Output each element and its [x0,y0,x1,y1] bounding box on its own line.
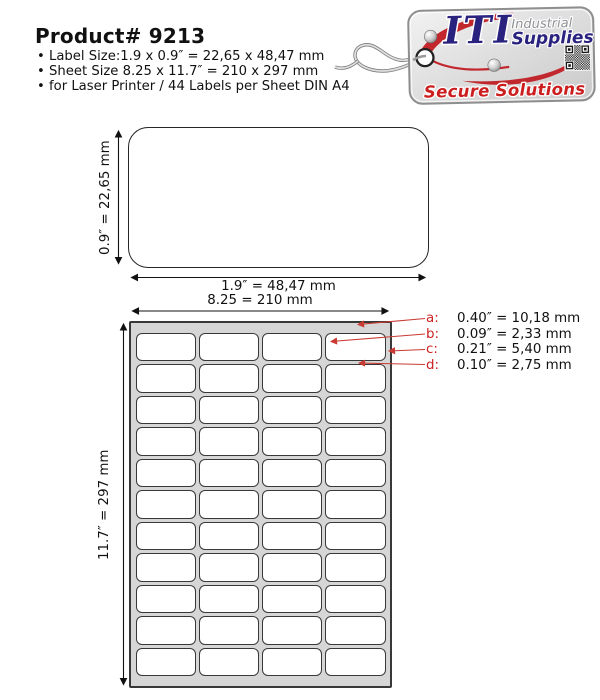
spec-bullet-sheet-size: • Sheet Size 8.25 x 11.7″ = 210 x 297 mm [37,65,350,80]
sheet-label-cell [262,364,322,392]
annotation-key: d: [426,358,457,373]
iti-logo-tag: ITI Industrial Supplies [325,4,598,110]
spec-bullet-text: Sheet Size 8.25 x 11.7″ = 210 x 297 mm [49,65,318,80]
bullet-dot: • [37,80,49,95]
sheet-label-cell [262,553,322,581]
sheet-label-cell [325,396,385,424]
qr-code-icon [564,44,591,71]
sheet-label-cell [262,585,322,613]
sheet-label-cell [199,616,259,644]
sheet-label-cell [199,427,259,455]
sheet-label-cell [262,522,322,550]
annotation-value: 0.09″ = 2,33 mm [457,327,572,342]
bullet-dot: • [37,65,49,80]
sheet-label-cell [262,459,322,487]
sphere-icon [488,59,501,72]
sheet-label-cell [325,333,385,361]
label-height-dimension: 0.9″ = 22,65 mm [98,127,115,268]
sheet-label-cell [136,427,196,455]
spec-bullet-printer-info: • for Laser Printer / 44 Labels per Shee… [37,80,350,95]
sheet-height-dimension: 11.7″ = 297 mm [97,321,114,688]
leader-line-c [389,350,425,352]
sheet-label-cell [136,553,196,581]
sheet-label-cell [199,553,259,581]
bullet-dot: • [37,50,49,65]
sheet-label-cell [262,490,322,518]
sheet-label-cell [199,585,259,613]
annotation-row-a: a: 0.40″ = 10,18 mm [426,311,580,327]
sheet-label-cell [262,333,322,361]
single-label-outline [128,127,429,268]
sheet-label-cell [262,396,322,424]
annotation-key: a: [426,311,457,326]
annotation-key: c: [426,342,457,357]
sheet-label-cell [199,333,259,361]
spec-bullet-text: Label Size:1.9 x 0.9″ = 22,65 x 48,47 mm [49,50,324,65]
sheet-label-cell [325,459,385,487]
sheet-label-cell [325,427,385,455]
sheet-label-cell [199,522,259,550]
sheet-label-cell [199,490,259,518]
annotation-row-d: d: 0.10″ = 2,75 mm [426,358,580,374]
sheet-label-cell [262,648,322,676]
tag-body: ITI Industrial Supplies [408,5,595,104]
sheet-label-cell [262,616,322,644]
sheet-label-cell [325,364,385,392]
sheet-grid [136,333,386,676]
label-sheet-diagram [129,321,392,688]
sheet-label-cell [325,585,385,613]
sheet-label-cell [325,648,385,676]
annotation-row-c: c: 0.21″ = 5,40 mm [426,342,580,358]
spec-bullet-text: for Laser Printer / 44 Labels per Sheet … [49,80,350,95]
margin-annotation-list: a: 0.40″ = 10,18 mm b: 0.09″ = 2,33 mm c… [426,311,580,373]
sphere-icon [424,30,437,43]
label-width-dimension: 1.9″ = 48,47 mm [128,279,429,294]
spec-bullet-list: • Label Size:1.9 x 0.9″ = 22,65 x 48,47 … [37,50,350,94]
sheet-label-cell [136,396,196,424]
sheet-label-cell [199,364,259,392]
sheet-label-cell [136,648,196,676]
product-spec-page: Product# 9213 • Label Size:1.9 x 0.9″ = … [0,0,600,700]
annotation-row-b: b: 0.09″ = 2,33 mm [426,327,580,343]
sheet-label-cell [325,522,385,550]
spec-bullet-label-size: • Label Size:1.9 x 0.9″ = 22,65 x 48,47 … [37,50,350,65]
sheet-label-cell [136,616,196,644]
sheet-label-cell [136,522,196,550]
annotation-key: b: [426,327,457,342]
sheet-label-cell [325,616,385,644]
annotation-value: 0.10″ = 2,75 mm [457,358,572,373]
tagline-text: Secure Solutions [424,79,586,101]
sheet-label-cell [325,553,385,581]
sheet-label-cell [136,459,196,487]
sheet-label-cell [136,364,196,392]
page-title: Product# 9213 [35,24,205,48]
sheet-label-cell [199,459,259,487]
sheet-label-cell [136,585,196,613]
sheet-label-cell [325,490,385,518]
annotation-value: 0.21″ = 5,40 mm [457,342,572,357]
sheet-width-dimension: 8.25 = 210 mm [129,293,391,308]
sheet-label-cell [199,648,259,676]
sheet-label-cell [136,333,196,361]
sheet-label-cell [199,396,259,424]
annotation-value: 0.40″ = 10,18 mm [457,311,580,326]
sheet-label-cell [136,490,196,518]
brand-iti-text: ITI [442,6,514,52]
sheet-label-cell [262,427,322,455]
